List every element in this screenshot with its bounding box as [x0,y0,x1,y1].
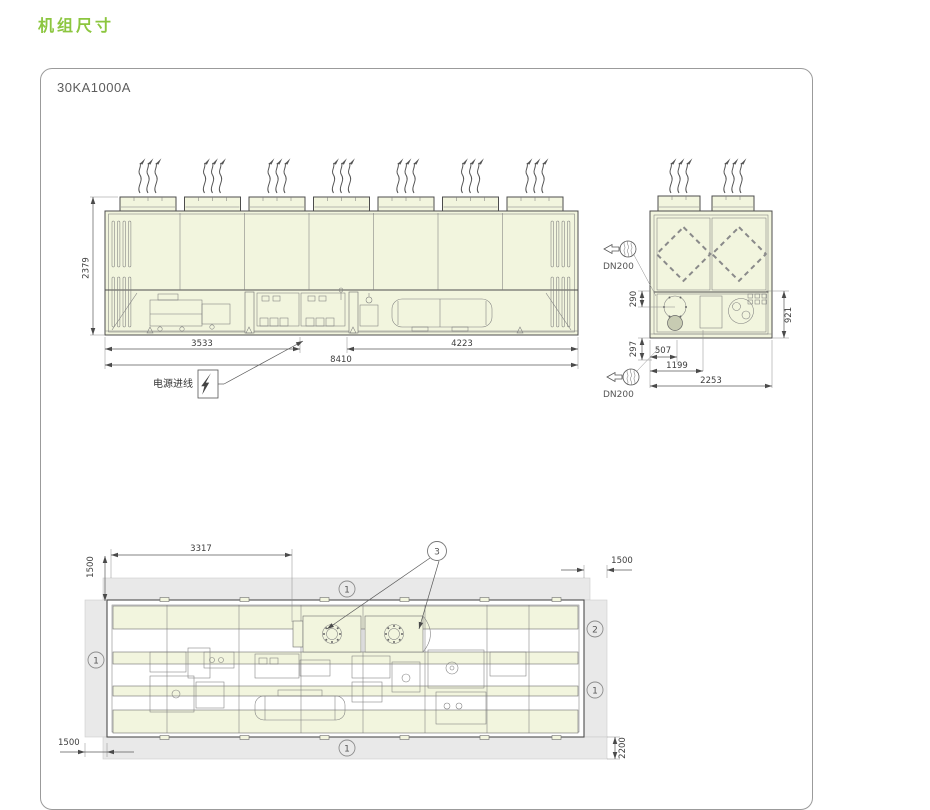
heat-arrows-icon [139,158,549,193]
dim-side-section-height: 921 [784,307,794,323]
clearance-band-right [584,600,607,737]
dim-clearance-right: 1500 [611,556,633,566]
dim-service-depth: 2200 [618,737,628,759]
callout-right-lower: 1 [592,686,598,696]
dim-front-right-section: 4223 [451,339,473,349]
dim-side-bottom-offset: 297 [629,341,639,357]
dim-clearance-top: 1500 [86,556,96,578]
dim-front-total-length: 8410 [330,355,352,365]
bottom-pipe-label: DN200 [603,390,634,400]
front-unit-body [105,211,578,335]
callout-right-upper: 2 [592,625,598,635]
dim-front-height: 2379 [82,257,92,279]
callout-connections: 3 [434,548,440,558]
dim-side-pipe-offset: 507 [655,346,671,356]
power-inlet-callout: 电源进线 [153,341,303,398]
callout-bottom: 1 [344,744,350,754]
plan-view: 1 1 2 1 1 3 3317 1500 1 [58,542,633,760]
clearance-band-left [85,600,107,737]
heat-arrows-icon [670,158,747,193]
dim-front-left-section: 3533 [191,339,213,349]
unit-dimensions-drawing: 2379 3533 4223 8410 电源进线 [0,0,930,763]
callout-top: 1 [344,585,350,595]
top-pipe-label: DN200 [603,262,634,272]
side-view: DN200 DN200 290 297 921 507 11 [603,158,794,400]
callout-left: 1 [93,656,99,666]
power-inlet-label: 电源进线 [153,377,193,390]
dim-side-total-width: 2253 [700,376,722,386]
dim-side-pipe-span: 1199 [666,361,688,371]
dim-clearance-bottom: 1500 [58,738,80,748]
front-view: 2379 3533 4223 8410 电源进线 [82,158,579,398]
dim-plan-left-span: 3317 [190,544,212,554]
dim-side-top-offset: 290 [629,291,639,307]
